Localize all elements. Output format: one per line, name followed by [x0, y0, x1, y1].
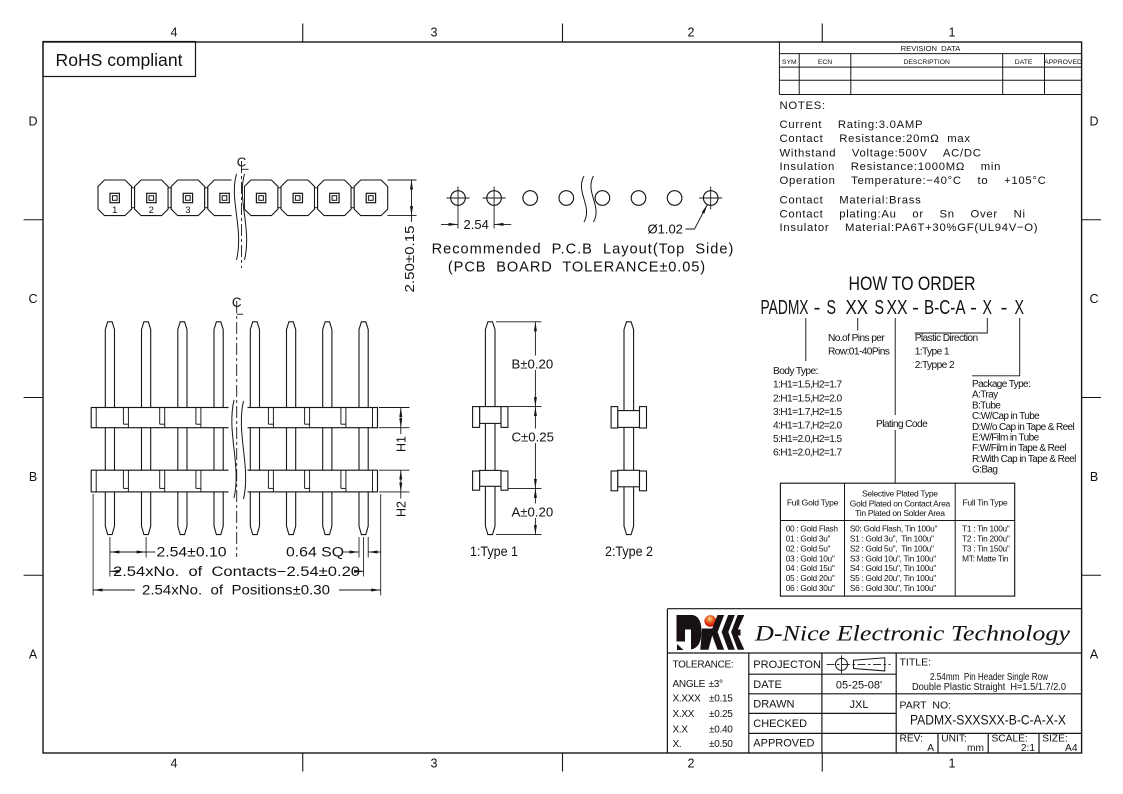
svg-text:±3°: ±3° [709, 679, 723, 690]
svg-text:H1: H1 [395, 436, 409, 452]
svg-text:UNIT:: UNIT: [941, 734, 966, 745]
svg-text:01 : Gold 3u": 01 : Gold 3u" [786, 533, 831, 543]
svg-text:00 : Gold Flash: 00 : Gold Flash [786, 523, 839, 533]
svg-text:2.50±0.15: 2.50±0.15 [402, 226, 417, 293]
svg-text:1:Type 1: 1:Type 1 [915, 347, 950, 358]
svg-text:Plating Code: Plating Code [876, 419, 928, 430]
svg-text:mm: mm [967, 743, 984, 754]
svg-text:Current Rating:3.0AMP: Current Rating:3.0AMP [780, 119, 924, 131]
svg-text:2:1: 2:1 [1021, 743, 1035, 754]
svg-text:2: 2 [149, 205, 154, 216]
svg-text:Contact Resistance:20mΩ max: Contact Resistance:20mΩ max [780, 133, 971, 145]
svg-text:Row:01-40Pins: Row:01-40Pins [828, 347, 890, 358]
svg-text:1: 1 [949, 26, 956, 40]
svg-text:2:H1=1.5,H2=2.0: 2:H1=1.5,H2=2.0 [773, 393, 843, 404]
svg-text:B±0.20: B±0.20 [512, 357, 554, 372]
svg-text:No.of Pins per: No.of Pins per [828, 333, 885, 344]
svg-text:S5 : Gold 20u", Tin 100u": S5 : Gold 20u", Tin 100u" [850, 573, 936, 583]
svg-text:DRAWN: DRAWN [753, 699, 794, 711]
svg-text:C: C [28, 292, 37, 306]
svg-text:Contact Material:Brass: Contact Material:Brass [780, 195, 922, 207]
svg-text:5:H1=2.0,H2=1.5: 5:H1=2.0,H2=1.5 [773, 434, 843, 445]
svg-text:T1 : Tin 100u": T1 : Tin 100u" [962, 523, 1010, 533]
svg-text:6:H1=2.0,H2=1.7: 6:H1=2.0,H2=1.7 [773, 448, 843, 459]
svg-text:PADMX: PADMX [761, 297, 809, 319]
svg-text:D-Nice Electronic Technology: D-Nice Electronic Technology [754, 621, 1070, 646]
svg-text:A±0.20: A±0.20 [512, 505, 554, 520]
svg-text:X.XX: X.XX [673, 709, 695, 720]
svg-text:Package Type:: Package Type: [972, 379, 1030, 390]
svg-text:X.XXX: X.XXX [673, 694, 702, 705]
svg-text:X.: X. [673, 739, 682, 750]
svg-text:Ø1.02: Ø1.02 [648, 222, 683, 237]
svg-text:F:W/Film in Tape & Reel: F:W/Film in Tape & Reel [972, 443, 1066, 454]
svg-text:Contact plating:Au or Sn O: Contact plating:Au or Sn Over Ni [780, 209, 1026, 221]
svg-text:D: D [28, 115, 37, 129]
svg-text:S2 : Gold 5u", Tin 100u": S2 : Gold 5u", Tin 100u" [850, 543, 934, 553]
svg-text:RoHS compliant: RoHS compliant [56, 50, 183, 70]
svg-text:D:W/o Cap in Tape & Reel: D:W/o Cap in Tape & Reel [972, 422, 1075, 433]
svg-text:G:Bag: G:Bag [972, 465, 997, 476]
svg-text:A:Tray: A:Tray [972, 390, 998, 401]
svg-text:S3 : Gold 10u", Tin 100u": S3 : Gold 10u", Tin 100u" [850, 553, 936, 563]
svg-text:PADMX-SXXSXX-B-C-A-X-X: PADMX-SXXSXX-B-C-A-X-X [910, 712, 1067, 728]
svg-text:S6 : Gold 30u", Tin 100u": S6 : Gold 30u", Tin 100u" [850, 583, 936, 593]
svg-text:B: B [1090, 470, 1098, 484]
svg-text:MT: Matte Tin: MT: Matte Tin [962, 553, 1009, 563]
svg-text:2.54: 2.54 [464, 217, 489, 232]
svg-text:S0: Gold Flash, Tin 100u": S0: Gold Flash, Tin 100u" [850, 523, 938, 533]
svg-text:APPROVED: APPROVED [1044, 59, 1082, 66]
svg-text:TOLERANCE:: TOLERANCE: [673, 660, 734, 671]
svg-text:S: S [827, 297, 837, 319]
svg-text:-: - [970, 297, 977, 319]
svg-text:NOTES:: NOTES: [780, 100, 826, 112]
svg-text:2:Type 2: 2:Type 2 [605, 544, 653, 559]
svg-text:DATE: DATE [1015, 59, 1033, 66]
svg-text:(PCB BOARD TOLERANCE±0.05): (PCB BOARD TOLERANCE±0.05) [448, 260, 706, 276]
svg-text:4: 4 [171, 757, 178, 771]
svg-text:02 : Gold 5u": 02 : Gold 5u" [786, 543, 831, 553]
svg-text:Insulator Material:PA6T+30%GF: Insulator Material:PA6T+30%GF(UL94V−O) [780, 222, 1039, 234]
svg-text:05 : Gold 20u": 05 : Gold 20u" [786, 573, 835, 583]
svg-text:2: 2 [688, 26, 695, 40]
svg-text:X: X [983, 297, 993, 319]
svg-text:S4 : Gold 15u", Tin 100u": S4 : Gold 15u", Tin 100u" [850, 563, 936, 573]
svg-text:C: C [1089, 292, 1098, 306]
svg-text:JXL: JXL [850, 699, 869, 711]
svg-text:C:W/Cap in Tube: C:W/Cap in Tube [972, 411, 1040, 422]
svg-text:06 : Gold 30u": 06 : Gold 30u" [786, 583, 835, 593]
svg-text:S: S [875, 297, 885, 319]
svg-text:Recommended P.C.B Layout(Top: Recommended P.C.B Layout(Top Side) [432, 242, 735, 258]
svg-text:Operation Temperature:−40°C: Operation Temperature:−40°C to +105°C [780, 175, 1047, 187]
svg-text:Selective Plated Type: Selective Plated Type [862, 488, 938, 498]
svg-text:X.X: X.X [673, 725, 689, 736]
svg-text:S1 : Gold 3u", Tin 100u": S1 : Gold 3u", Tin 100u" [850, 533, 934, 543]
svg-text:1:Type 1: 1:Type 1 [470, 544, 518, 559]
svg-text:Gold Plated on Contact Area: Gold Plated on Contact Area [850, 498, 951, 508]
svg-text:APPROVED: APPROVED [753, 738, 814, 750]
svg-text:0.64 SQ: 0.64 SQ [286, 545, 344, 560]
svg-text:Tin Plated on Solder Area: Tin Plated on Solder Area [855, 508, 945, 518]
svg-text:3:H1=1.7,H2=1.5: 3:H1=1.7,H2=1.5 [773, 407, 843, 418]
svg-text:A: A [1090, 648, 1099, 662]
svg-text:C±0.25: C±0.25 [512, 430, 554, 445]
svg-text:CHECKED: CHECKED [753, 718, 807, 730]
svg-text:XX: XX [887, 297, 908, 319]
svg-text:4: 4 [171, 26, 178, 40]
svg-text:05-25-08': 05-25-08' [836, 679, 882, 691]
svg-text:Full Tin Type: Full Tin Type [962, 498, 1007, 508]
svg-text:3: 3 [185, 205, 190, 216]
svg-text:ECN: ECN [818, 59, 832, 66]
svg-text:Plastic Direction: Plastic Direction [915, 333, 978, 344]
svg-text:±0.25: ±0.25 [709, 709, 733, 720]
svg-text:SIZE:: SIZE: [1042, 734, 1067, 745]
svg-text:DESCRIPTION: DESCRIPTION [903, 59, 950, 66]
svg-text:Full Gold Type: Full Gold Type [787, 498, 839, 508]
svg-text:2.54±0.10: 2.54±0.10 [157, 545, 227, 560]
svg-text:DATE: DATE [753, 679, 782, 691]
svg-text:2:Typpe 2: 2:Typpe 2 [915, 360, 955, 371]
svg-text:-: - [912, 297, 919, 319]
svg-text:TITLE:: TITLE: [900, 657, 932, 669]
svg-text:A4: A4 [1065, 743, 1078, 754]
svg-text:E:W/Film in Tube: E:W/Film in Tube [972, 433, 1040, 444]
svg-text:B-C-A: B-C-A [924, 297, 966, 319]
svg-text:3: 3 [431, 757, 438, 771]
svg-text:-: - [814, 297, 821, 319]
svg-text:REV:: REV: [900, 734, 923, 745]
svg-text:1: 1 [112, 205, 117, 216]
svg-text:Withstand Voltage:500V AC/DC: Withstand Voltage:500V AC/DC [780, 148, 982, 160]
svg-text:2.54xNo. of Contacts−2.54±0.: 2.54xNo. of Contacts−2.54±0.20 [113, 564, 360, 579]
svg-text:D: D [1089, 115, 1098, 129]
svg-text:±0.50: ±0.50 [709, 739, 733, 750]
svg-text:1: 1 [949, 757, 956, 771]
svg-text:REVISION DATA: REVISION DATA [901, 44, 962, 53]
svg-text:±0.40: ±0.40 [709, 725, 733, 736]
svg-text:XX: XX [846, 297, 869, 319]
svg-text:±0.15: ±0.15 [709, 694, 733, 705]
svg-text:B: B [29, 470, 37, 484]
svg-text:R:With Cap in Tape & Reel: R:With Cap in Tape & Reel [972, 454, 1076, 465]
svg-text:H2: H2 [395, 501, 409, 517]
svg-text:04 : Gold 15u": 04 : Gold 15u" [786, 563, 835, 573]
svg-text:ANGLE: ANGLE [673, 679, 706, 690]
svg-text:-: - [1001, 297, 1008, 319]
svg-text:T3 : Tin 150u": T3 : Tin 150u" [962, 543, 1010, 553]
svg-text:PART NO:: PART NO: [900, 700, 952, 712]
svg-text:03 : Gold 10u": 03 : Gold 10u" [786, 553, 835, 563]
svg-text:3: 3 [431, 26, 438, 40]
svg-text:2.54xNo. of Positions±0.30: 2.54xNo. of Positions±0.30 [142, 582, 330, 597]
svg-text:HOW TO ORDER: HOW TO ORDER [849, 274, 976, 295]
svg-text:B:Tube: B:Tube [972, 400, 1001, 411]
svg-text:4:H1=1.7,H2=2.0: 4:H1=1.7,H2=2.0 [773, 421, 843, 432]
svg-text:A: A [927, 743, 934, 754]
svg-text:T2 : Tin 200u": T2 : Tin 200u" [962, 533, 1010, 543]
svg-text:SYM: SYM [782, 59, 797, 66]
svg-text:A: A [29, 648, 38, 662]
svg-text:2: 2 [688, 757, 695, 771]
svg-text:X: X [1015, 297, 1025, 319]
svg-text:1:H1=1.5,H2=1.7: 1:H1=1.5,H2=1.7 [773, 380, 843, 391]
svg-text:Double Plastic Straight H=1.5: Double Plastic Straight H=1.5/1.7/2.0 [912, 682, 1066, 693]
svg-text:Body Type:: Body Type: [773, 366, 818, 377]
svg-text:PROJECTON: PROJECTON [753, 659, 821, 671]
svg-text:Insulation Resistance:1000MΩ: Insulation Resistance:1000MΩ min [780, 161, 1002, 173]
